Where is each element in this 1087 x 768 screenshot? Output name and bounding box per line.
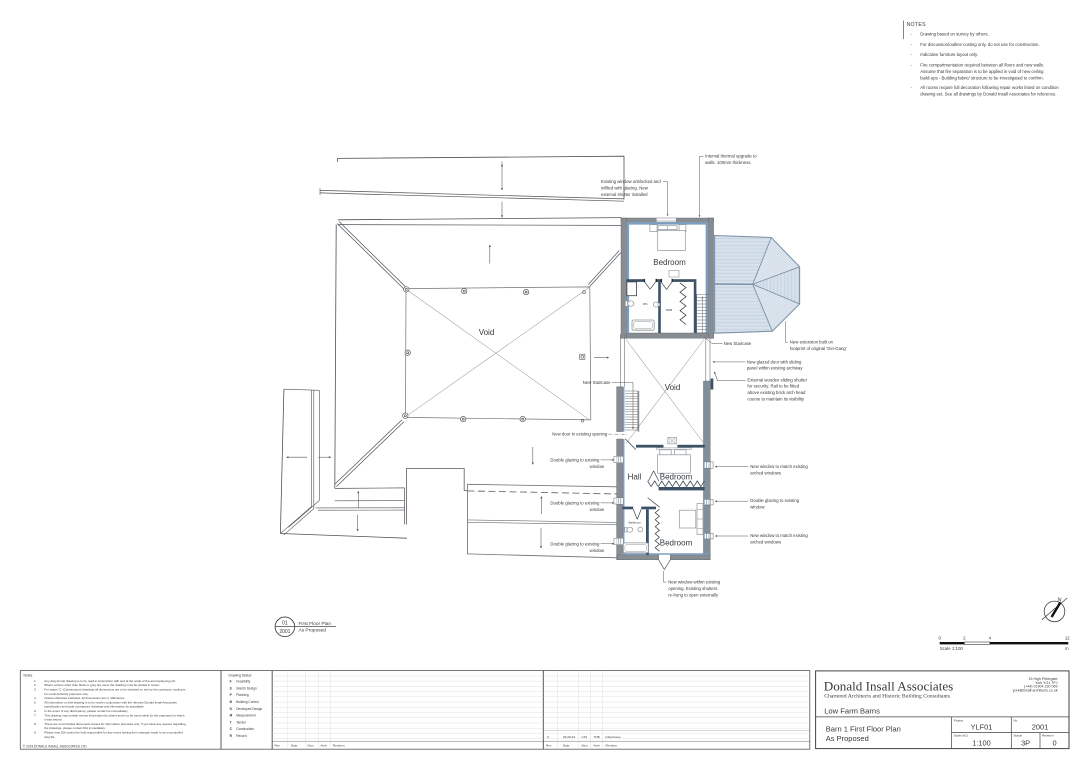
svg-text:Date: Date: [291, 744, 298, 748]
svg-text:window: window: [590, 464, 605, 469]
svg-text:2001: 2001: [279, 629, 290, 635]
svg-text:This drawing may contain surve: This drawing may contain survey informat…: [44, 713, 184, 717]
svg-text:New window to match existing: New window to match existing: [750, 464, 808, 469]
svg-text:New window within existing: New window within existing: [668, 580, 721, 585]
svg-text:Revision: Revision: [606, 744, 618, 748]
svg-text:Low Farm Barns: Low Farm Barns: [824, 706, 880, 715]
svg-text:N: N: [1058, 597, 1062, 603]
svg-text:Void: Void: [665, 383, 681, 392]
svg-text:Scale 1:100: Scale 1:100: [940, 646, 964, 651]
svg-text:Rev: Rev: [546, 744, 552, 748]
svg-text:for security. Rail to be fitte: for security. Rail to be fitted: [747, 384, 799, 389]
svg-text:Double glazing to existing: Double glazing to existing: [550, 541, 600, 546]
svg-text:F: F: [230, 680, 232, 684]
svg-text:Double glazing to existing: Double glazing to existing: [550, 458, 600, 463]
svg-text:S: S: [230, 686, 232, 690]
svg-text:No: No: [1014, 718, 1018, 722]
svg-text:window: window: [590, 548, 605, 553]
svg-text:As Proposed: As Proposed: [299, 628, 327, 634]
svg-text:Planning: Planning: [236, 693, 249, 697]
svg-text:panel within existing archway: panel within existing archway: [747, 366, 804, 371]
svg-text:Double glazing to existing: Double glazing to existing: [550, 501, 600, 506]
svg-text:Hall: Hall: [628, 473, 642, 482]
svg-text:Dwn: Dwn: [308, 744, 314, 748]
svg-text:external shutter installed: external shutter installed: [601, 192, 648, 197]
svg-text:3P: 3P: [1021, 738, 1030, 747]
svg-text:Notes: Notes: [24, 673, 33, 677]
svg-text:T: T: [230, 720, 232, 724]
svg-text:Bedroom: Bedroom: [660, 538, 693, 547]
svg-text:Double glazing to existing: Double glazing to existing: [750, 498, 800, 503]
svg-text:New glazed door with sliding: New glazed door with sliding: [747, 359, 802, 364]
svg-text:Project: Project: [954, 718, 964, 722]
svg-text:re-hung to open externally: re-hung to open externally: [668, 592, 719, 597]
svg-text:B/S: B/S: [643, 302, 648, 306]
svg-text:arched windows: arched windows: [750, 539, 781, 544]
svg-text:Revision: Revision: [1042, 734, 1054, 738]
svg-text:Drawing based on survey by oth: Drawing based on survey by others.: [920, 32, 989, 37]
svg-text:NOTES: NOTES: [907, 22, 927, 28]
svg-text:9.: 9.: [34, 731, 37, 735]
svg-text:New extension built on: New extension built on: [790, 340, 834, 345]
svg-text:All rooms require full decorat: All rooms require full decoration follow…: [920, 85, 1059, 90]
svg-text:Bathroom: Bathroom: [629, 521, 642, 525]
svg-text:12: 12: [1065, 636, 1070, 641]
svg-text:Auth: Auth: [594, 744, 601, 748]
svg-text:m: m: [1065, 646, 1069, 651]
svg-text:Internal thermal upgrade to: Internal thermal upgrade to: [705, 154, 757, 159]
svg-text:0: 0: [1052, 738, 1056, 747]
svg-text:Rev: Rev: [275, 744, 281, 748]
svg-text:YLF01: YLF01: [971, 722, 993, 731]
svg-text:Record: Record: [236, 734, 247, 738]
svg-text:Donald Insall Associates: Donald Insall Associates: [824, 679, 953, 694]
svg-text:Developed Design: Developed Design: [236, 707, 262, 711]
svg-text:As Proposed: As Proposed: [826, 734, 869, 743]
svg-text:Bedroom: Bedroom: [660, 473, 693, 482]
svg-text:Existing window unblocked and: Existing window unblocked and: [601, 179, 661, 184]
svg-text:build-ups - Building fabric/ s: build-ups - Building fabric/ structure t…: [920, 76, 1043, 81]
svg-text:External wooden sliding shutte: External wooden sliding shutter: [747, 377, 807, 382]
svg-text:Initial Issue: Initial Issue: [606, 735, 621, 739]
svg-text:Please note DIA cannot be held: Please note DIA cannot be held responsib…: [44, 731, 183, 735]
svg-text:course to maintain its visibil: course to maintain its visibility: [747, 397, 804, 402]
svg-text:opening. Existing shutters: opening. Existing shutters: [668, 586, 717, 591]
svg-text:york@insall-architects.co.uk: york@insall-architects.co.uk: [1013, 688, 1058, 692]
svg-text:New window to match existing: New window to match existing: [750, 533, 808, 538]
svg-text:Chartered Architects and Histo: Chartered Architects and Historic Buildi…: [824, 694, 951, 700]
svg-text:© 2023 DONALD INSALL ASSOCIATE: © 2023 DONALD INSALL ASSOCIATES LTD: [23, 744, 87, 748]
svg-text:Indicative furniture layout on: Indicative furniture layout only.: [920, 52, 978, 57]
svg-text:Barn 1 First Floor Plan: Barn 1 First Floor Plan: [826, 724, 901, 733]
svg-text:window: window: [590, 507, 605, 512]
svg-text:Void: Void: [479, 328, 495, 337]
svg-text:8.: 8.: [34, 722, 37, 726]
svg-text:Dwn: Dwn: [582, 744, 588, 748]
svg-text:Construction: Construction: [236, 727, 254, 731]
svg-text:7.: 7.: [34, 713, 37, 717]
svg-text:above existing brick arch head: above existing brick arch head: [747, 390, 806, 395]
svg-text:1:100: 1:100: [972, 738, 991, 747]
svg-text:Fire compartmentation required: Fire compartmentation required between a…: [920, 63, 1044, 68]
svg-text:Assume that fire separation is: Assume that fire separation is to be app…: [920, 69, 1044, 74]
svg-text:5.: 5.: [34, 700, 37, 704]
svg-text:Sketch Design: Sketch Design: [236, 686, 257, 690]
svg-text:dwg file.: dwg file.: [44, 735, 55, 739]
svg-text:CJS: CJS: [582, 735, 588, 739]
svg-text:Scale (A1): Scale (A1): [954, 734, 968, 738]
svg-text:Feasibility: Feasibility: [236, 680, 251, 684]
svg-text:01: 01: [282, 621, 288, 627]
svg-text:Bedroom: Bedroom: [653, 258, 686, 267]
svg-text:arched windows: arched windows: [750, 470, 781, 475]
svg-text:2001: 2001: [1032, 722, 1048, 731]
svg-text:drawing set. See all drawings: drawing set. See all drawings by Donald …: [920, 91, 1056, 96]
svg-text:Auth: Auth: [321, 744, 328, 748]
svg-text:Drawing Status: Drawing Status: [229, 673, 252, 677]
svg-text:New door in existing opening: New door in existing opening: [552, 432, 608, 437]
svg-text:Date: Date: [563, 744, 570, 748]
svg-text:Revision: Revision: [333, 744, 345, 748]
svg-text:M: M: [230, 714, 233, 718]
svg-text:TOB: TOB: [594, 735, 600, 739]
svg-text:29-09-23: 29-09-23: [563, 735, 575, 739]
svg-text:3.: 3.: [34, 688, 37, 692]
svg-text:New Staircase: New Staircase: [724, 341, 752, 346]
svg-text:Status: Status: [1014, 734, 1023, 738]
svg-text:window: window: [750, 505, 765, 510]
svg-text:Building Control: Building Control: [236, 700, 259, 704]
svg-text:Tender: Tender: [236, 720, 247, 724]
svg-text:WDB: WDB: [666, 308, 672, 312]
svg-text:walls. 100mm thickness.: walls. 100mm thickness.: [705, 160, 752, 165]
svg-text:For discussion/outline costing: For discussion/outline costing only, do …: [920, 42, 1039, 47]
svg-text:infilled with glazing. New: infilled with glazing. New: [601, 185, 649, 190]
svg-text:Measurement: Measurement: [236, 714, 256, 718]
svg-text:footprint of original 'Gin-Gan: footprint of original 'Gin-Gang': [790, 346, 847, 351]
svg-text:New Staircase: New Staircase: [583, 380, 611, 385]
svg-text:First Floor Plan: First Floor Plan: [299, 621, 332, 627]
